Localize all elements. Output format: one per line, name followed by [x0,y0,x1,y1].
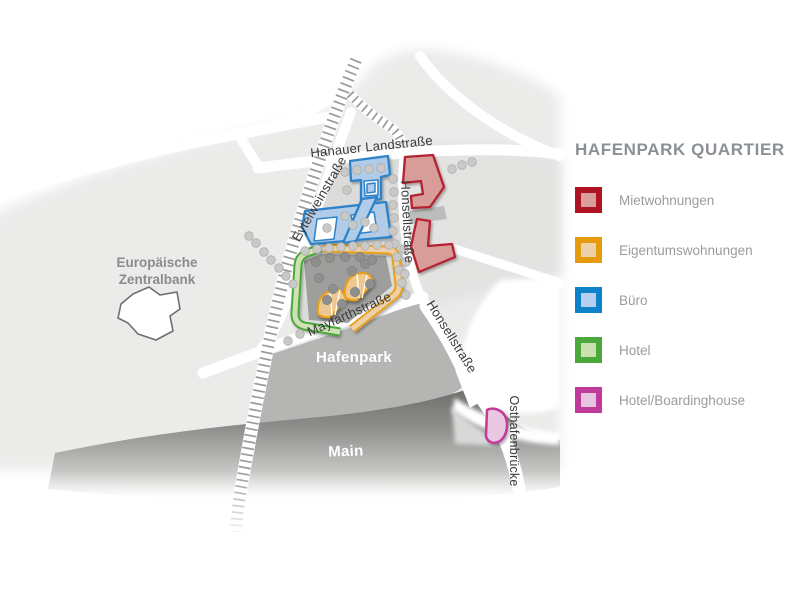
legend-item-eigentumswohnungen: Eigentumswohnungen [575,237,785,263]
legend-label-buero: Büro [619,293,648,308]
legend-item-hotel: Hotel [575,337,785,363]
legend-label-hotel: Hotel [619,343,651,358]
label-ecb-line2: Zentralbank [119,272,196,287]
legend-swatch-hotel [575,337,602,363]
legend-item-mietwohnungen: Mietwohnungen [575,187,785,213]
legend-swatch-mietwohnungen [575,187,602,213]
legend-swatch-boardinghouse [575,387,602,413]
legend-swatch-buero [575,287,602,313]
legend-title: HAFENPARK QUARTIER [575,140,785,160]
legend: HAFENPARK QUARTIER Mietwohnungen Eigentu… [575,140,785,437]
legend-item-boardinghouse: Hotel/Boardinghouse [575,387,785,413]
legend-label-mietwohnungen: Mietwohnungen [619,193,714,208]
legend-label-boardinghouse: Hotel/Boardinghouse [619,393,745,408]
legend-label-eigentumswohnungen: Eigentumswohnungen [619,243,753,258]
bottom-fade [0,470,570,599]
label-ecb-line1: Europäische [116,255,198,270]
label-hafenpark: Hafenpark [316,349,392,366]
legend-item-buero: Büro [575,287,785,313]
label-osthafenbruecke: Osthafenbrücke [507,395,521,486]
hafenpark-quartier-map-page: Hanauer Landstraße Eytelweinstraße Honse… [0,0,800,599]
legend-swatch-eigentumswohnungen [575,237,602,263]
label-main-river: Main [328,442,364,460]
building-boardinghouse [486,409,507,443]
